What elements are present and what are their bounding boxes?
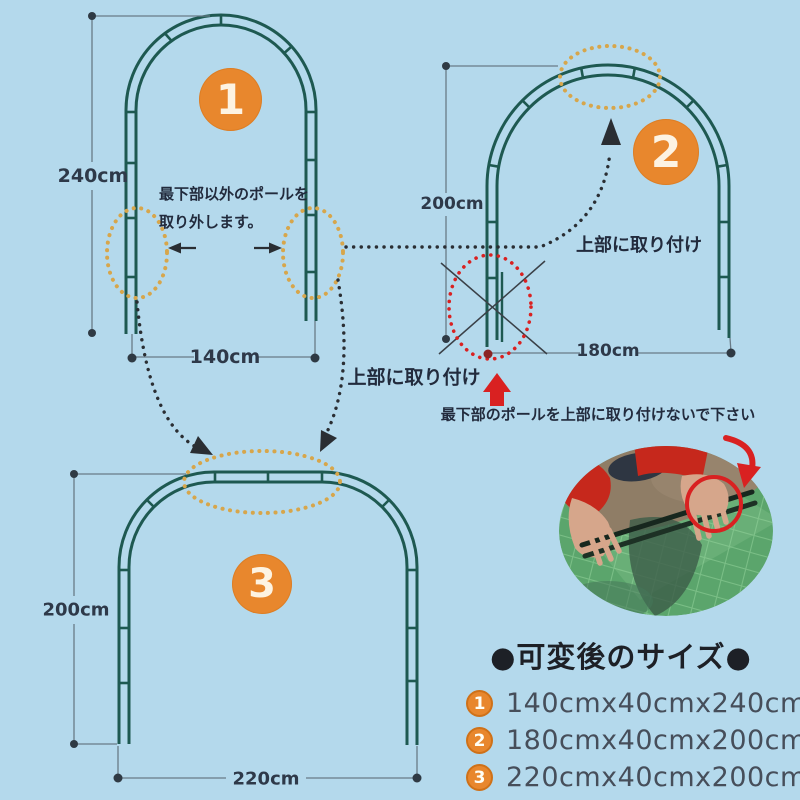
size-item-1-badge: 1	[466, 690, 493, 717]
step-badge-2: 2	[633, 119, 699, 185]
sizes-heading: ●可変後のサイズ●	[490, 634, 752, 676]
arch3-height-label: 200cm	[43, 600, 110, 621]
garden-arch-instruction-infographic: 1 2 3 240cm 140cm 200cm 180cm 200cm 220c…	[0, 0, 800, 800]
step-badge-3: 3	[232, 554, 292, 614]
move-path-to-arch3-left	[137, 302, 213, 455]
arch2-width-label: 180cm	[576, 341, 639, 361]
arch2-warning-text: 最下部のポールを上部に取り付けないで下さい	[441, 404, 756, 425]
arch3-attach-label: 上部に取り付け	[347, 363, 480, 390]
move-arrowhead-downleft-icon	[320, 430, 337, 452]
diagram-canvas	[0, 0, 800, 800]
arch3-width-label: 220cm	[233, 769, 300, 790]
size-item-1: 1 140cmx40cmx240cm	[466, 688, 800, 719]
size-item-3-dimensions: 220cmx40cmx200cm	[506, 762, 800, 793]
step-badge-1: 1	[199, 68, 262, 131]
pull-arrow-right-icon	[254, 243, 282, 254]
warning-up-arrow-icon	[483, 373, 511, 406]
arch1-note-line1: 最下部以外のポールを	[159, 180, 309, 208]
arch1-width-label: 140cm	[190, 346, 261, 368]
arch-1-joint-ticks	[126, 15, 316, 277]
move-path-to-arch3-right	[320, 280, 344, 452]
top-highlight-arch2	[560, 46, 660, 108]
prohibition-mark	[439, 255, 547, 359]
arch-2-frame	[487, 65, 729, 347]
pull-arrow-left-icon	[168, 243, 196, 254]
arch2-height-label: 200cm	[420, 194, 483, 214]
move-path-to-arch2	[346, 118, 621, 247]
move-arrowhead-up-icon	[601, 118, 621, 145]
arch1-note-line2: 取り外します。	[159, 208, 309, 236]
size-item-2-dimensions: 180cmx40cmx200cm	[506, 725, 800, 756]
size-item-3: 3 220cmx40cmx200cm	[466, 762, 800, 793]
size-item-1-dimensions: 140cmx40cmx240cm	[506, 688, 800, 719]
size-item-3-badge: 3	[466, 764, 493, 791]
size-item-2-badge: 2	[466, 727, 493, 754]
arch1-height-label: 240cm	[58, 165, 129, 187]
size-item-2: 2 180cmx40cmx200cm	[466, 725, 800, 756]
arch1-note: 最下部以外のポールを 取り外します。	[159, 180, 309, 236]
arch-3-dimensions	[70, 470, 422, 783]
arch2-attach-label: 上部に取り付け	[576, 231, 702, 257]
arch-1-frame	[126, 15, 316, 334]
